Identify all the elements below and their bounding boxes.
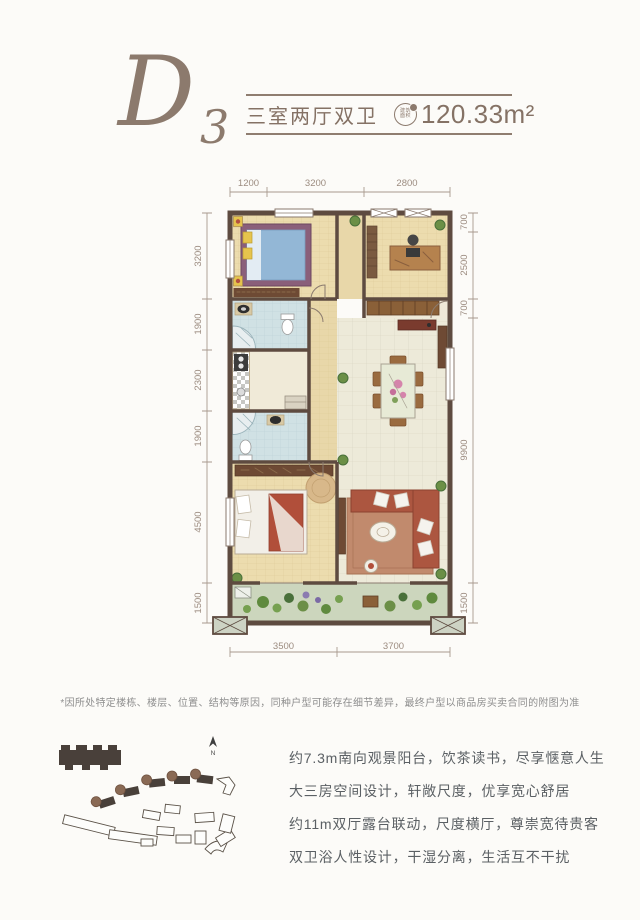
bedroom2-furniture xyxy=(234,217,312,298)
dim-label: 1500 xyxy=(193,592,204,613)
dim-label: 1900 xyxy=(193,313,204,334)
highlighted-building xyxy=(59,745,121,770)
dim-label: 1500 xyxy=(459,592,470,613)
area-badge-line2: 面积 xyxy=(400,114,411,120)
badge-dot-icon xyxy=(409,103,418,112)
area-badge-icon: 建筑 面积 xyxy=(394,103,417,126)
dim-label: 3200 xyxy=(305,178,326,189)
dim-label: 1900 xyxy=(193,425,204,446)
dim-label: 700 xyxy=(459,300,470,316)
area-value: 120.33m² xyxy=(421,99,535,130)
feature-copy: 约7.3m南向观景阳台，饮茶读书，尽享惬意人生 大三房空间设计，轩敞尺度，优享宽… xyxy=(289,748,619,880)
hall-floor xyxy=(337,215,364,299)
header-rule-bottom xyxy=(246,133,512,135)
dim-label: 1200 xyxy=(238,178,259,189)
dim-label: 2500 xyxy=(459,254,470,275)
disclaimer-text: *因所处特定楼栋、楼层、位置、结构等原因，同种户型可能存在细节差异，最终户型以商… xyxy=(0,694,640,709)
dining-set xyxy=(373,356,423,426)
floorplan: 1200 3200 2800 3200 1900 2300 1900 4500 … xyxy=(185,168,515,668)
siteplan: N xyxy=(45,733,240,873)
dim-label: 2800 xyxy=(396,178,417,189)
plan-code-letter: D xyxy=(118,44,195,140)
header-info-row: 三室两厅双卫 建筑 面积 120.33m² xyxy=(246,96,512,132)
feature-line: 约11m双厅露台联动，尺度横厅，尊崇宽待贵客 xyxy=(289,814,619,834)
compass-icon: N xyxy=(209,736,217,757)
layout-title: 三室两厅双卫 xyxy=(246,100,378,129)
arc-buildings xyxy=(90,768,214,810)
plan-code-number: 3 xyxy=(200,104,229,150)
dim-label: 4500 xyxy=(193,511,204,532)
compass-label: N xyxy=(211,750,216,757)
feature-line: 双卫浴人性设计，干湿分离，生活互不干扰 xyxy=(289,847,619,867)
feature-line: 约7.3m南向观景阳台，饮茶读书，尽享惬意人生 xyxy=(289,748,619,768)
plan-logo: D 3 xyxy=(118,58,238,158)
dim-label: 3500 xyxy=(273,641,294,652)
dim-label: 3700 xyxy=(383,641,404,652)
feature-line: 大三房空间设计，轩敞尺度，优享宽心舒居 xyxy=(289,781,619,801)
dim-label: 2300 xyxy=(193,369,204,390)
dim-label: 9900 xyxy=(459,439,470,460)
dim-label: 700 xyxy=(459,214,470,230)
outline-buildings xyxy=(63,777,236,854)
dim-label: 3200 xyxy=(193,245,204,266)
